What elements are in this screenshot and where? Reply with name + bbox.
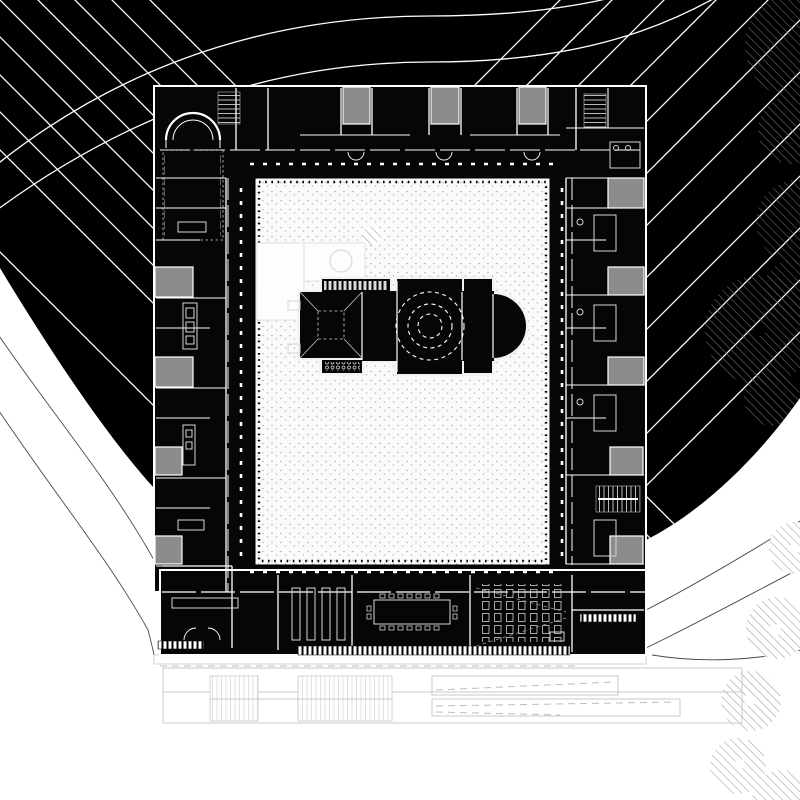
south-glazing-mullions xyxy=(298,646,570,655)
scalloped-canopy xyxy=(324,362,360,371)
stair-east xyxy=(596,486,640,512)
stair-northeast xyxy=(584,94,606,128)
narthex-block xyxy=(362,291,397,361)
south-wing-block xyxy=(160,570,646,655)
chapel-pews-right xyxy=(210,152,221,236)
central-pavilion xyxy=(288,279,526,374)
chancel-block xyxy=(462,291,494,361)
auditorium xyxy=(476,584,566,646)
chapel-pews-left xyxy=(164,152,175,236)
courtyard-tree xyxy=(362,227,380,245)
courtyard-fountain xyxy=(330,250,352,272)
building xyxy=(154,86,646,655)
stair-northwest xyxy=(218,92,240,124)
clerestory-comb xyxy=(324,281,388,290)
site-plan-drawing xyxy=(0,0,800,800)
